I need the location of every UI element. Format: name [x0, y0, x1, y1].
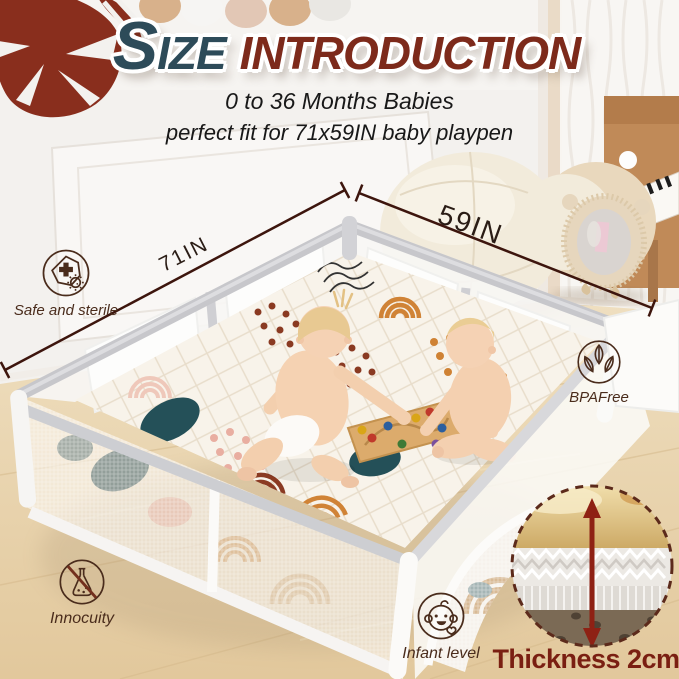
subtitle-line-1: 0 to 36 Months Babies: [0, 88, 679, 115]
three-leaves-icon: [575, 338, 623, 386]
badge-bpa-free: BPAFree: [549, 338, 649, 406]
badge-label: Safe and sterile: [14, 302, 118, 319]
subtitle-line-2: perfect fit for 71x59IN baby playpen: [0, 120, 679, 146]
shield-cross-germ-icon: [40, 247, 92, 299]
badge-label: Innocuity: [50, 610, 114, 628]
no-chemical-flask-icon: [57, 557, 107, 607]
badge-safe-and-sterile: Safe and sterile: [11, 247, 121, 319]
badge-infant-level: Infant level: [386, 590, 496, 663]
badge-innocuity: Innocuity: [32, 557, 132, 628]
pompom: [619, 151, 637, 169]
badge-label: BPAFree: [569, 389, 629, 406]
title-word-introduction: INTRODUCTION: [240, 30, 581, 76]
page-title: SIZEINTRODUCTION: [0, 12, 679, 80]
badge-label: Infant level: [402, 645, 479, 663]
thickness-label: Thickness 2cm: [492, 644, 679, 675]
product-infographic: SIZEINTRODUCTION 0 to 36 Months Babies p…: [0, 0, 679, 679]
baby-face-heart-icon: [415, 590, 467, 642]
title-word-size: SIZE: [113, 12, 226, 80]
